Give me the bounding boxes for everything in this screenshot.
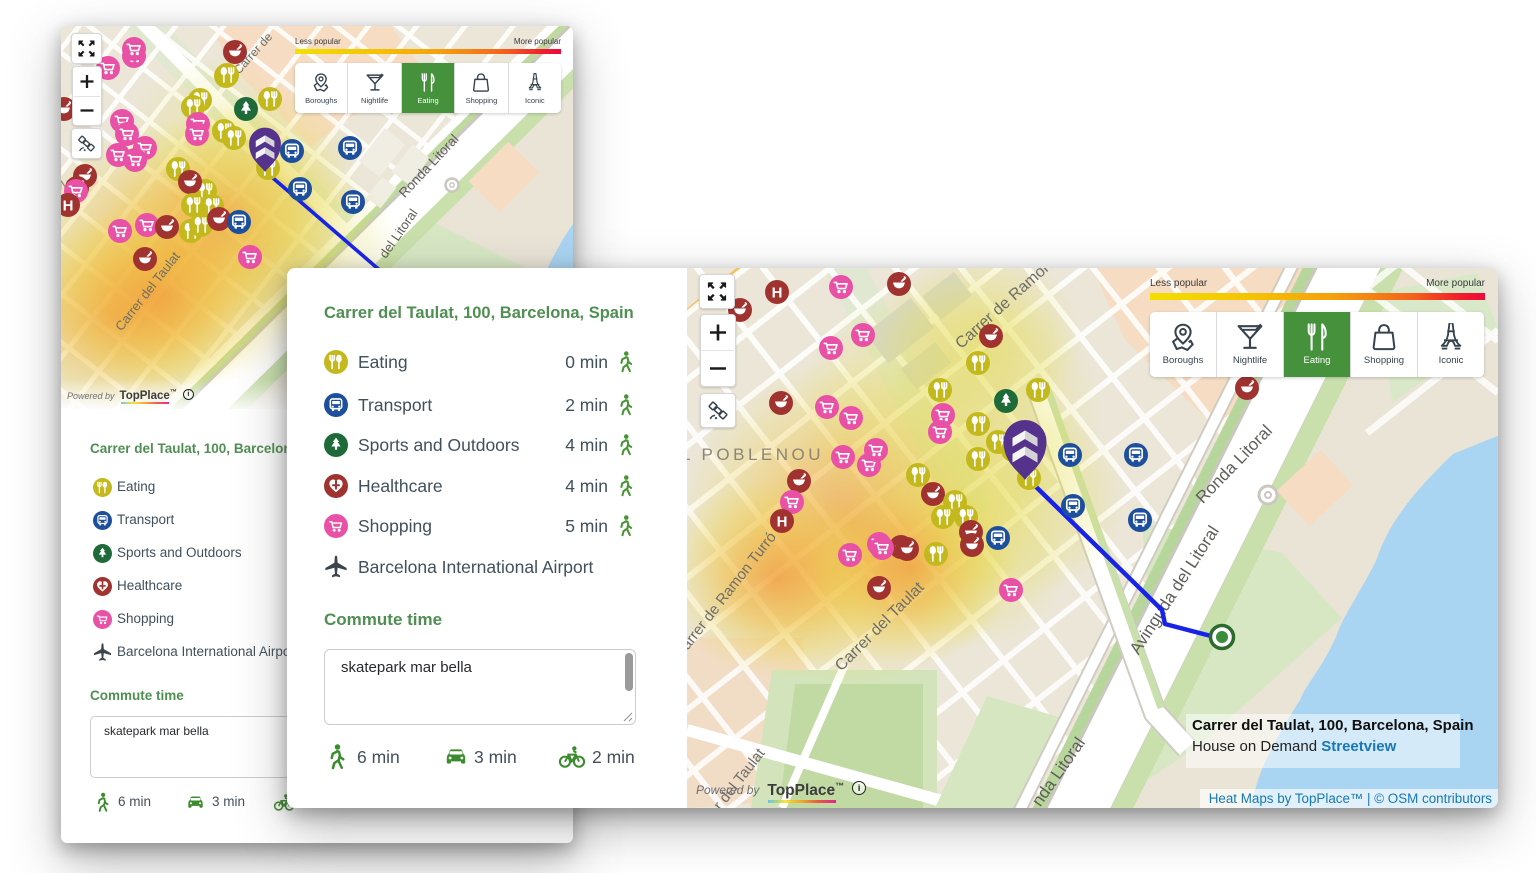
svg-text:L POBLENOU: L POBLENOU [687,445,824,464]
